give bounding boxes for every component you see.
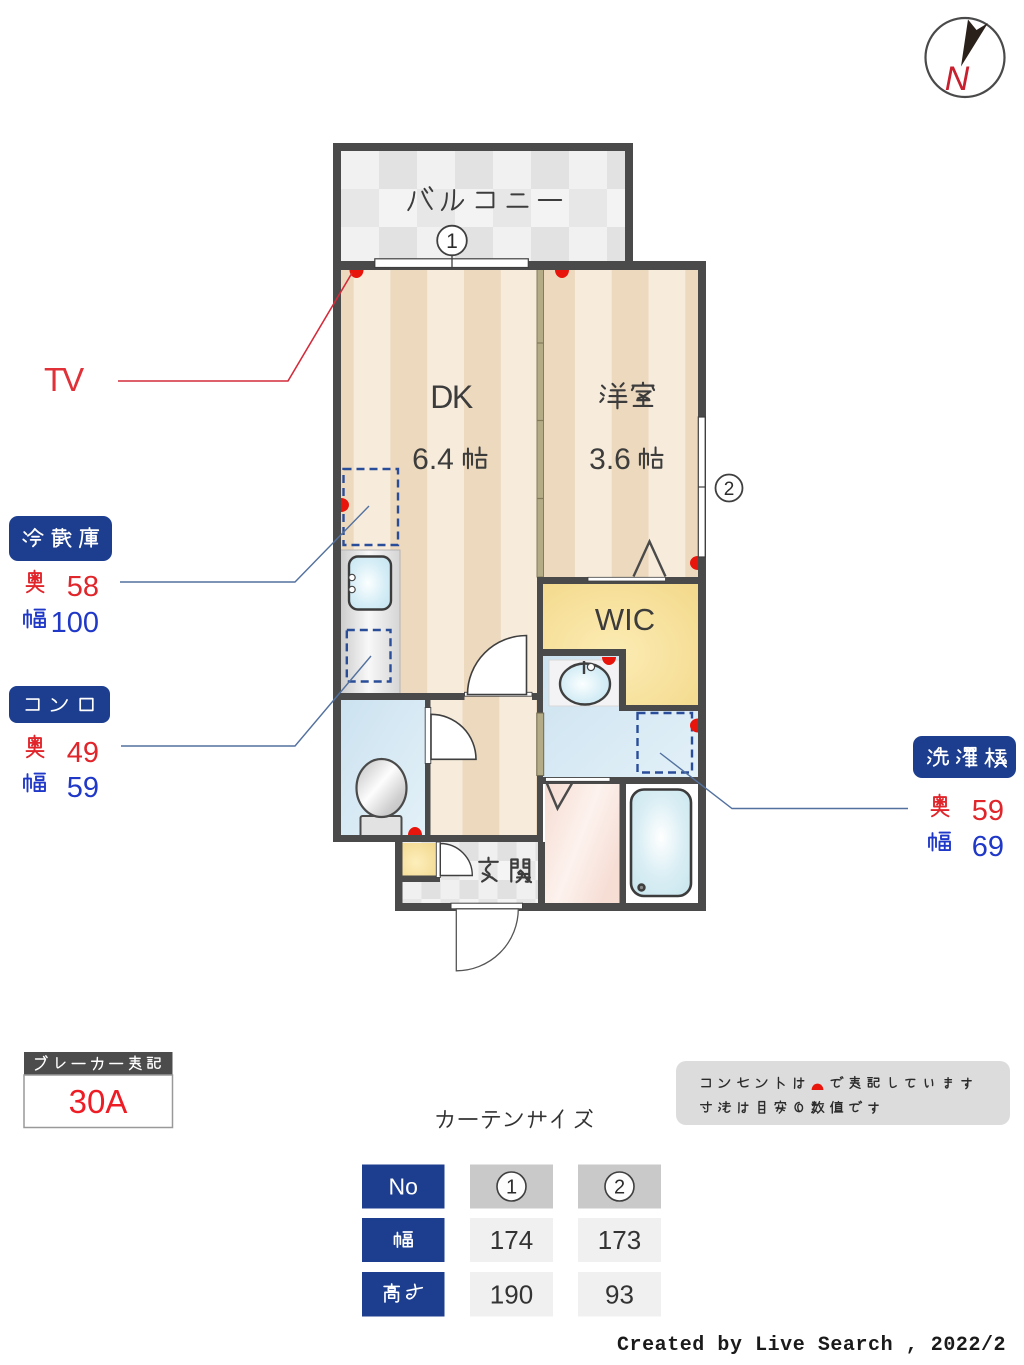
svg-text:1: 1 bbox=[506, 1177, 517, 1199]
svg-text:49: 49 bbox=[67, 737, 99, 769]
svg-text:N: N bbox=[945, 60, 970, 98]
svg-text:190: 190 bbox=[490, 1279, 533, 1309]
svg-text:59: 59 bbox=[67, 772, 99, 804]
svg-text:173: 173 bbox=[598, 1225, 641, 1255]
svg-text:93: 93 bbox=[605, 1279, 634, 1309]
svg-text:58: 58 bbox=[67, 571, 99, 603]
svg-text:3.6: 3.6 bbox=[589, 443, 631, 476]
svg-text:69: 69 bbox=[972, 831, 1004, 863]
svg-text:No: No bbox=[389, 1174, 418, 1200]
svg-text:2: 2 bbox=[724, 479, 735, 500]
svg-text:DK: DK bbox=[430, 379, 473, 415]
svg-text:WIC: WIC bbox=[595, 602, 655, 637]
svg-text:30A: 30A bbox=[69, 1083, 128, 1120]
svg-text:100: 100 bbox=[51, 607, 99, 639]
svg-text:174: 174 bbox=[490, 1225, 533, 1255]
svg-text:Created by Live Search , 2022/: Created by Live Search , 2022/2 bbox=[617, 1334, 1006, 1357]
svg-text:1: 1 bbox=[446, 230, 458, 253]
svg-text:2: 2 bbox=[614, 1177, 625, 1199]
svg-text:6.4: 6.4 bbox=[412, 443, 454, 476]
svg-text:TV: TV bbox=[44, 361, 84, 398]
svg-text:59: 59 bbox=[972, 795, 1004, 827]
